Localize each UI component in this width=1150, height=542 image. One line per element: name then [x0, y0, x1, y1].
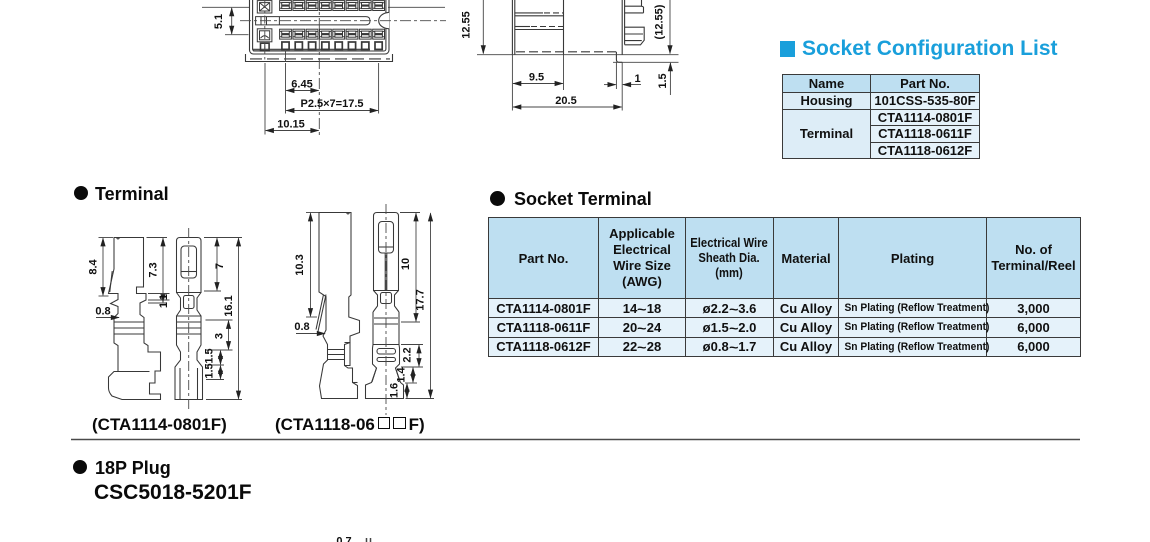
svg-text:3: 3 [214, 333, 226, 339]
svg-text:1.5: 1.5 [204, 363, 216, 378]
svg-text:1.5: 1.5 [204, 348, 216, 363]
svg-text:1: 1 [158, 302, 170, 308]
svg-text:8.4: 8.4 [88, 258, 100, 274]
svg-text:P2.5×7=17.5: P2.5×7=17.5 [300, 98, 363, 110]
svg-text:(12.55): (12.55) [654, 4, 666, 39]
svg-text:2.2: 2.2 [402, 347, 414, 362]
svg-text:17.7: 17.7 [415, 289, 427, 310]
svg-text:7: 7 [214, 263, 226, 269]
svg-text:1: 1 [158, 294, 170, 300]
svg-text:1.6: 1.6 [389, 383, 401, 398]
svg-text:10.15: 10.15 [277, 119, 305, 131]
svg-text:1.4: 1.4 [396, 366, 408, 382]
svg-text:1: 1 [634, 73, 640, 85]
svg-text:0.8: 0.8 [95, 306, 110, 318]
svg-text:12.55: 12.55 [461, 11, 473, 39]
svg-text:1.5: 1.5 [657, 73, 669, 88]
svg-text:10: 10 [400, 258, 412, 270]
svg-text:16.1: 16.1 [223, 295, 235, 316]
svg-text:0.7: 0.7 [336, 536, 351, 542]
svg-text:5.1: 5.1 [213, 14, 225, 29]
svg-text:20.5: 20.5 [555, 95, 576, 107]
svg-text:7.3: 7.3 [148, 262, 160, 277]
svg-text:0.8: 0.8 [294, 321, 309, 333]
svg-text:9.5: 9.5 [529, 72, 544, 84]
svg-text:6.45: 6.45 [291, 79, 312, 91]
svg-text:10.3: 10.3 [294, 254, 306, 275]
